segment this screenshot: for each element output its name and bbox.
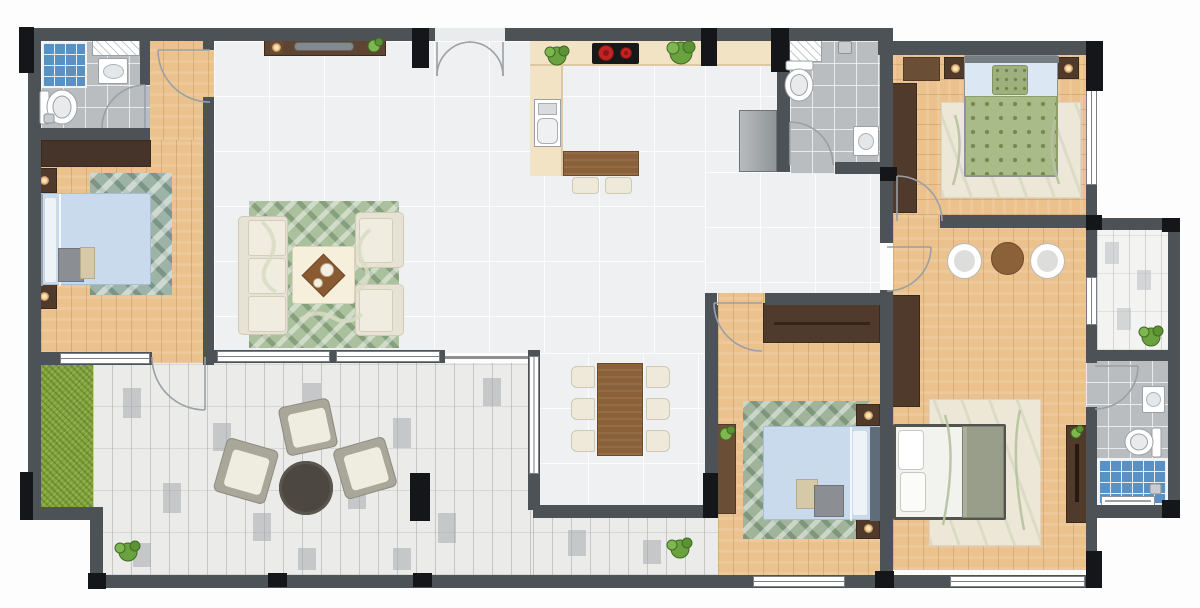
dining-chair <box>646 430 670 452</box>
bedroom3-window <box>753 576 845 587</box>
outdoor-coffee-table <box>279 461 333 515</box>
column <box>413 573 432 587</box>
bathroom1-shelf <box>92 39 140 56</box>
column <box>1162 500 1180 518</box>
bathroom2-shower-head <box>838 41 852 54</box>
wall-wing-bottom <box>1097 505 1168 518</box>
column <box>1086 41 1103 91</box>
bedroom2-nightstand-right <box>1057 57 1079 79</box>
wall-mid-vertical-a <box>880 28 893 243</box>
foot-cushion-grey <box>814 485 844 517</box>
bedroom2-window <box>1086 88 1097 185</box>
living-window-1 <box>217 351 330 362</box>
sofa <box>238 216 288 335</box>
wall-top-bedroom2 <box>878 41 1097 55</box>
master-duvet <box>962 426 1004 518</box>
fridge <box>739 110 777 172</box>
bedroom1-bed <box>33 193 151 285</box>
wall-bedroom1-bottom-b <box>203 352 214 365</box>
wall-left <box>28 28 41 520</box>
wall-vestibule-right-a <box>203 28 214 50</box>
master-bed <box>893 424 1006 520</box>
column <box>880 167 897 181</box>
wall-hall-bottom-stub <box>705 293 717 305</box>
dining-chair <box>571 430 595 452</box>
floor-plan <box>0 0 1200 608</box>
kitchen-sink <box>534 99 561 147</box>
bathroom1-sink <box>98 58 128 84</box>
wall-bath1-right <box>140 28 150 85</box>
bar-stool-1 <box>572 177 599 194</box>
outdoor-armchair-1 <box>277 397 338 457</box>
wall-master-right-c <box>1086 407 1097 575</box>
living-window-2 <box>336 351 440 362</box>
column <box>1162 218 1180 232</box>
column <box>1086 215 1102 230</box>
bedroom2-pillow <box>992 65 1028 95</box>
wall-dining-bottom <box>533 505 718 518</box>
wall-wing-right <box>1168 218 1180 518</box>
dining-chair <box>646 398 670 420</box>
oval-chair-left <box>947 243 982 279</box>
column <box>412 28 429 68</box>
foot-cushion-tan <box>80 247 95 279</box>
bathroom1-shower-floor <box>41 41 87 88</box>
master-pillows <box>898 430 926 514</box>
dining-chair <box>646 366 670 388</box>
wall-left-step <box>28 507 103 520</box>
column <box>88 573 106 589</box>
balcony-sliding-door <box>1086 277 1097 325</box>
column <box>771 28 789 72</box>
column <box>19 27 34 73</box>
wall-top-left <box>28 28 435 41</box>
wall-vestibule-right-b <box>203 97 214 352</box>
bedroom3-shelf <box>716 424 736 514</box>
entrance-threshold <box>435 28 505 41</box>
oval-chair-right <box>1030 243 1065 279</box>
tv <box>294 42 354 51</box>
bedroom3-nightstand-top <box>856 404 880 426</box>
wall-master-right-a <box>1086 228 1097 278</box>
wall-top-right <box>505 28 890 41</box>
terrace-opening-line <box>445 356 530 359</box>
column <box>20 472 33 520</box>
column <box>268 573 287 587</box>
wall-mid-vertical-b <box>880 290 893 575</box>
round-side-table <box>991 242 1024 275</box>
armchair-1 <box>355 212 404 268</box>
armchair-2 <box>355 284 404 336</box>
wall-bath2-bottom <box>835 162 880 174</box>
column <box>701 28 717 66</box>
wall-wing-mid <box>1097 350 1168 361</box>
wall-bedroom2-bottom <box>940 215 1097 228</box>
dining-chair <box>571 366 595 388</box>
grass-bed <box>41 365 93 507</box>
column <box>703 473 718 518</box>
hallway-floor <box>705 172 880 293</box>
master-wardrobe-right <box>1066 425 1087 523</box>
bathroom3-sink <box>1142 386 1165 413</box>
bedroom3-wardrobe <box>763 303 880 343</box>
wall-bath1-bottom <box>28 128 150 140</box>
master-window <box>950 576 1085 587</box>
bedroom2-nightstand-left <box>944 57 966 79</box>
column-terrace <box>410 473 430 521</box>
bar-stool-2 <box>605 177 632 194</box>
bedroom2-bed <box>964 55 1058 177</box>
cooktop <box>592 43 639 64</box>
dining-window <box>529 356 539 474</box>
bedroom1-window <box>60 353 150 364</box>
bedroom3-bed <box>763 426 880 520</box>
kitchen-counter-top <box>530 41 772 66</box>
tv-lamp <box>270 41 283 54</box>
wall-master-right-b <box>1086 325 1097 363</box>
balcony-floor <box>1097 230 1168 350</box>
column <box>875 571 894 588</box>
dining-chair <box>571 398 595 420</box>
island-bar <box>563 151 639 176</box>
dining-table <box>597 363 643 456</box>
bedroom2-shelf <box>903 57 940 81</box>
bedroom1-wardrobe <box>41 140 151 167</box>
bathroom2-sink <box>853 126 879 156</box>
column <box>1086 551 1102 588</box>
wall-hall-bottom <box>765 293 880 305</box>
